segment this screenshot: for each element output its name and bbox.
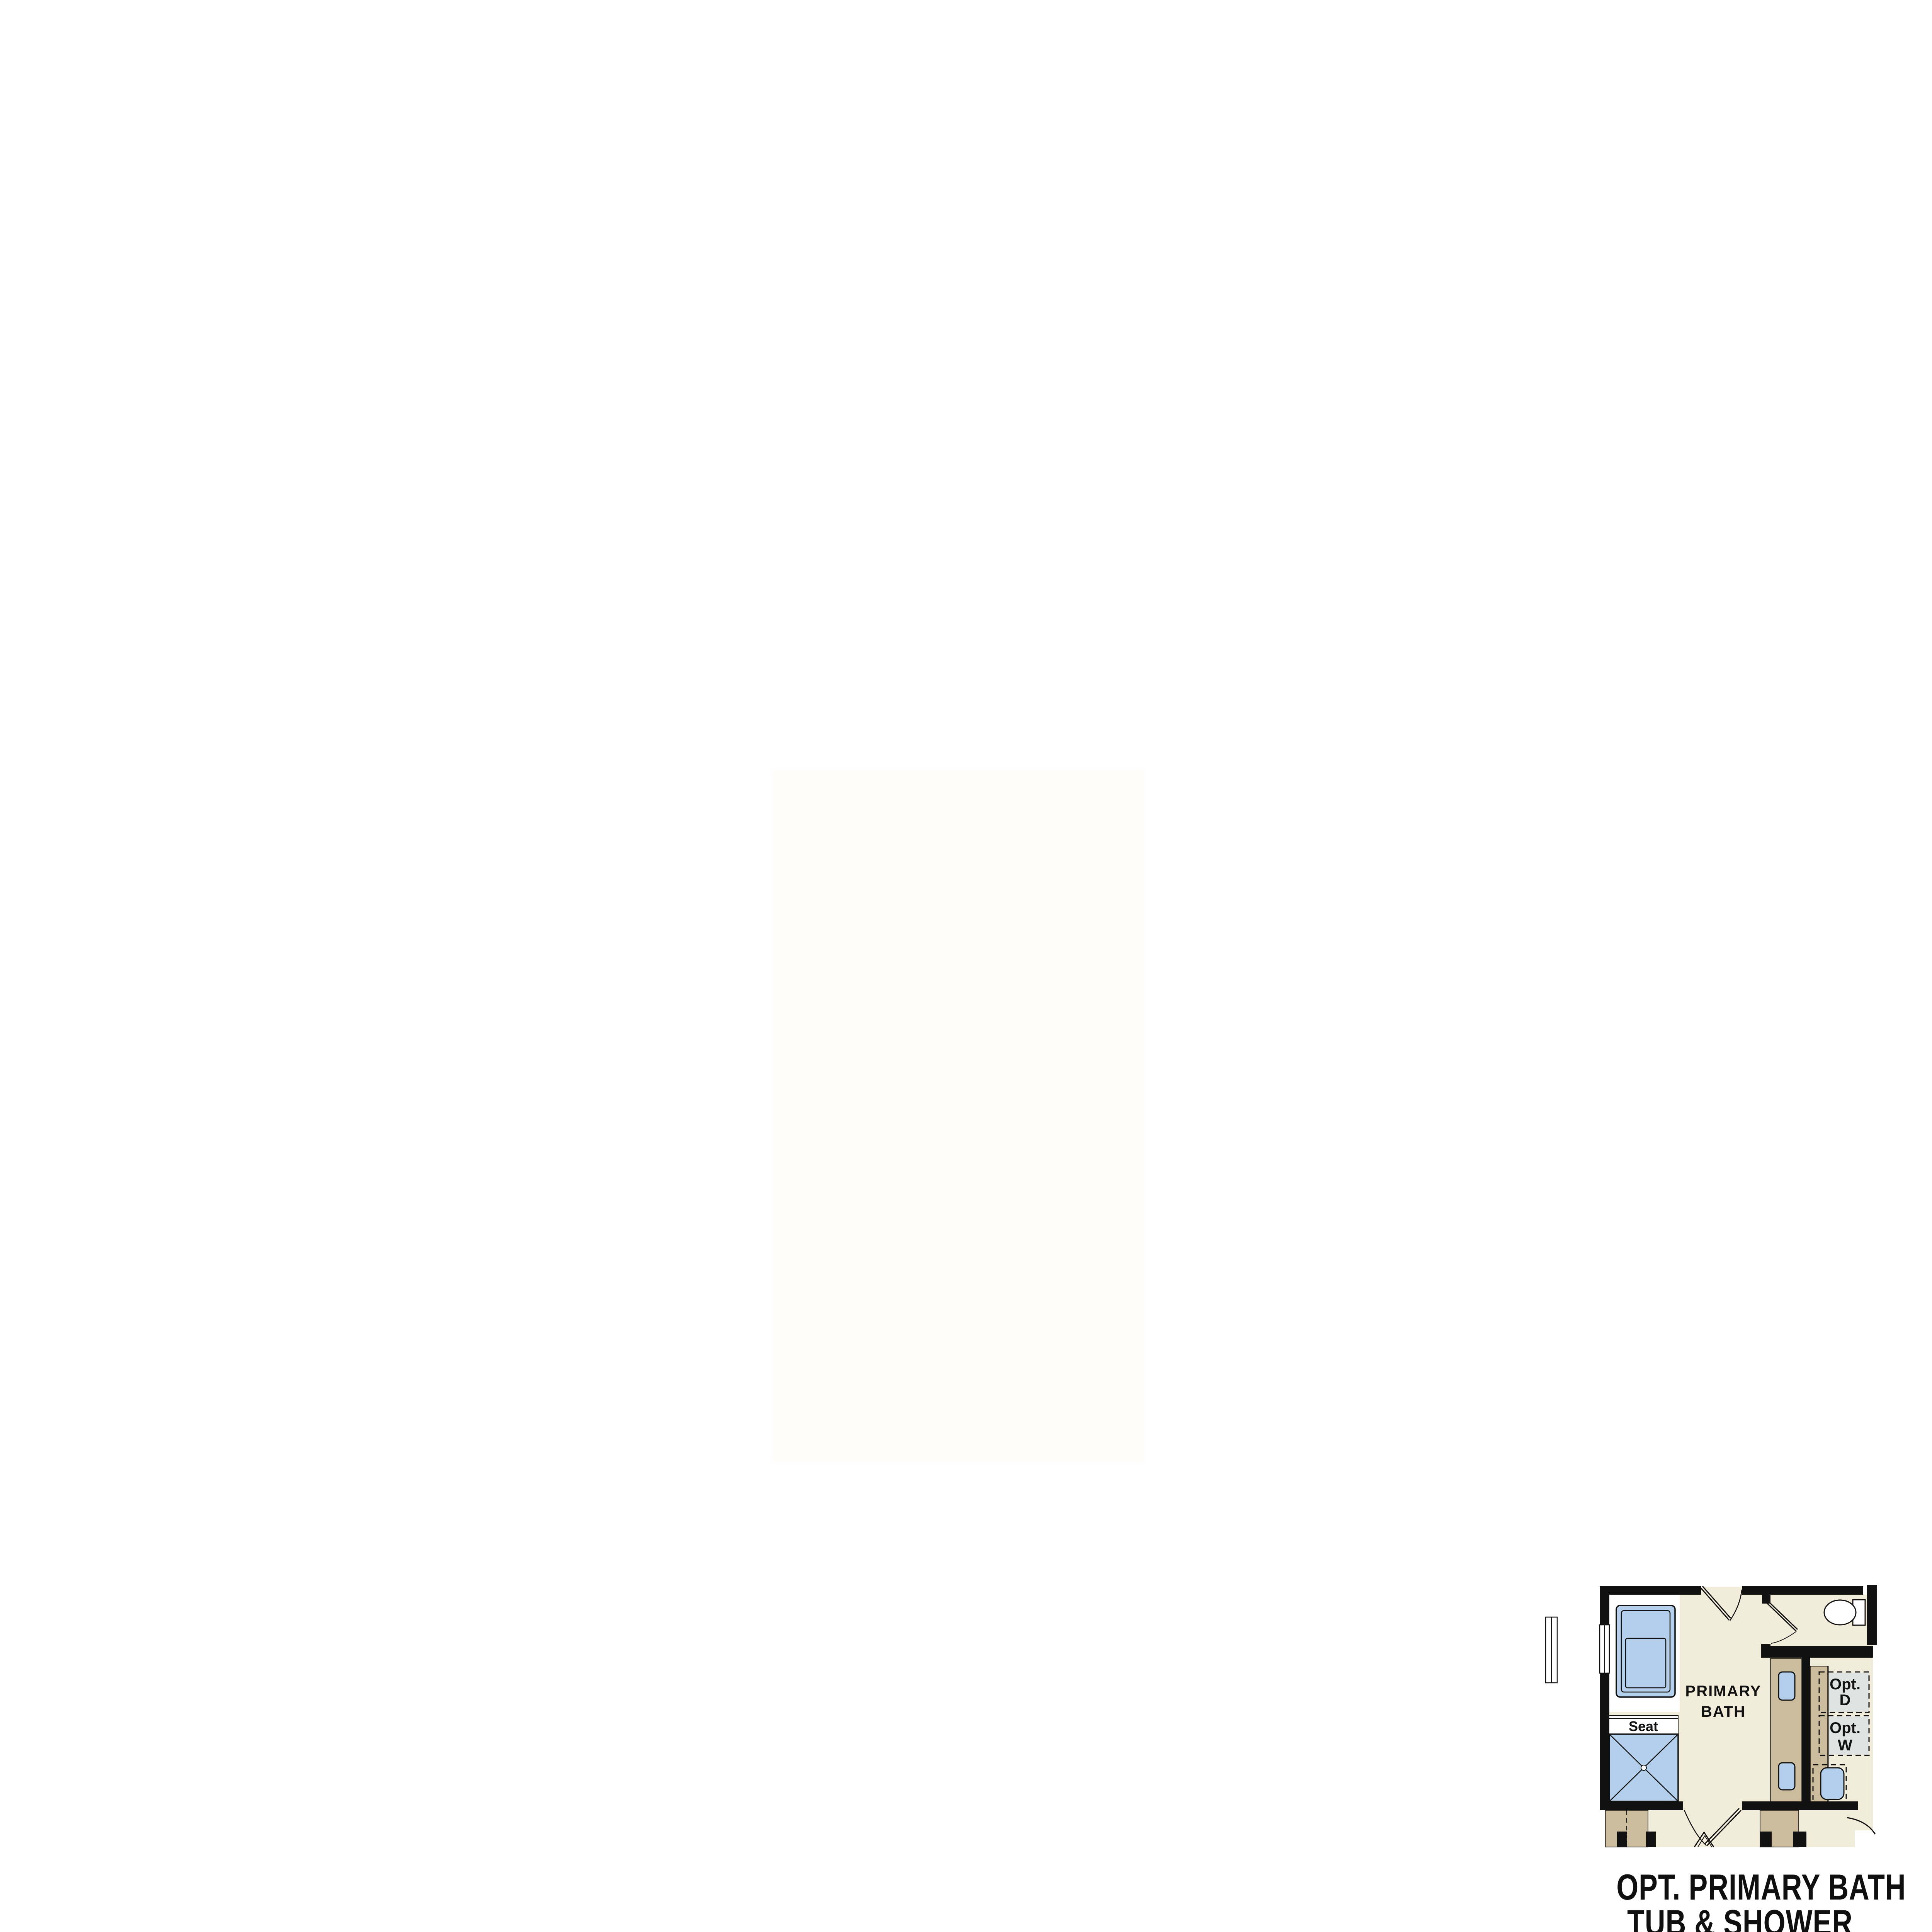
sink-icon — [1779, 1763, 1795, 1790]
svg-text:Opt.: Opt. — [1830, 1719, 1861, 1736]
sink-icon — [1779, 1672, 1795, 1700]
svg-text:D: D — [1840, 1692, 1851, 1709]
wall-fragment — [1546, 1617, 1557, 1683]
bathtub — [1616, 1605, 1675, 1697]
vanity — [1770, 1658, 1802, 1804]
svg-text:Opt.: Opt. — [1830, 1676, 1861, 1693]
sink-icon — [1821, 1768, 1844, 1799]
caption-primary-bath: OPT. PRIMARY BATH TUB & SHOWER — [1616, 1869, 1864, 1932]
floor-plan-figure: Seat Opt. D — [771, 769, 1146, 1464]
shower-seat: Seat — [1609, 1716, 1678, 1734]
svg-text:PRIMARY: PRIMARY — [1685, 1683, 1762, 1700]
document-page: Seat Opt. D — [0, 0, 1932, 1932]
window-icon — [1600, 1625, 1609, 1673]
caption-line: OPT. PRIMARY BATH — [1616, 1869, 1864, 1905]
toilet-icon — [1824, 1600, 1865, 1625]
seat-label: Seat — [1629, 1718, 1658, 1734]
shower — [1609, 1734, 1678, 1801]
caption-line: TUB & SHOWER — [1616, 1905, 1864, 1932]
svg-text:W: W — [1838, 1737, 1852, 1754]
svg-text:BATH: BATH — [1701, 1703, 1746, 1720]
plan-primary-bath: Seat Opt. D — [1540, 1580, 1880, 1851]
